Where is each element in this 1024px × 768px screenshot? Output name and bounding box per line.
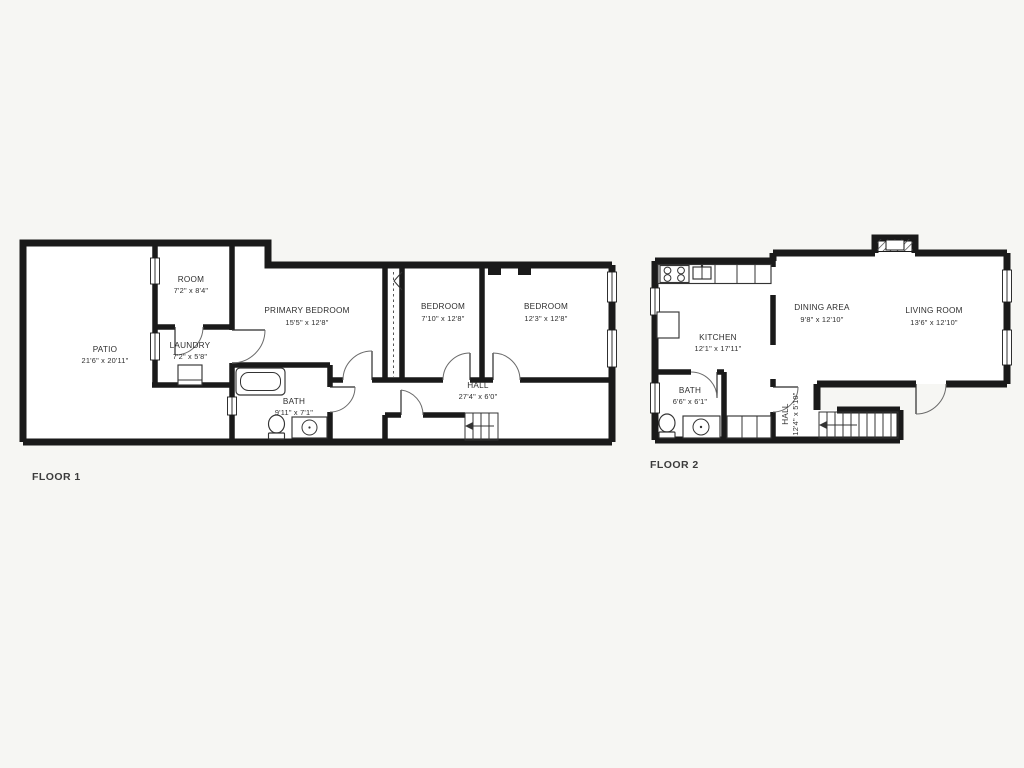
room-dims: 7'2" x 8'4" bbox=[174, 286, 209, 295]
bathtub-icon bbox=[236, 368, 285, 395]
chimney bbox=[877, 239, 914, 252]
room-dims: 27'4" x 6'0" bbox=[459, 392, 498, 401]
floor1-plan: PATIO 21'6" x 20'11" ROOM 7'2" x 8'4" LA… bbox=[18, 234, 622, 458]
toilet-icon bbox=[659, 414, 675, 438]
floor2-title: FLOOR 2 bbox=[650, 459, 699, 471]
room-dims: 7'2" x 5'8" bbox=[173, 352, 208, 361]
room-label: HALL bbox=[467, 381, 489, 390]
room-label: PRIMARY BEDROOM bbox=[264, 306, 349, 315]
room-label: KITCHEN bbox=[699, 333, 737, 342]
kitchen-sink-icon bbox=[693, 265, 711, 279]
room-dims: 7'10" x 12'8" bbox=[421, 314, 464, 323]
room-dims: 15'5" x 12'8" bbox=[285, 318, 328, 327]
room-label: LAUNDRY bbox=[170, 341, 211, 350]
floor1-title: FLOOR 1 bbox=[32, 471, 81, 483]
room-label: BEDROOM bbox=[524, 302, 568, 311]
room-dims: 12'4" x 5'10" bbox=[791, 392, 800, 435]
sink-icon bbox=[292, 417, 327, 438]
stove-icon bbox=[660, 266, 689, 283]
room-dims: 9'8" x 12'10" bbox=[800, 315, 843, 324]
washer-icon bbox=[178, 365, 202, 385]
room-label: BEDROOM bbox=[421, 302, 465, 311]
room-label: BATH bbox=[283, 397, 305, 406]
floor2-plan: KITCHEN 12'1" x 17'11" DINING AREA 9'8" … bbox=[645, 234, 1017, 456]
room-dims: 13'6" x 12'10" bbox=[910, 318, 958, 327]
room-label: ROOM bbox=[178, 275, 204, 284]
kitchen-counter-bottom bbox=[727, 416, 771, 438]
fridge-icon bbox=[657, 312, 679, 338]
room-dims: 9'11" x 7'1" bbox=[275, 408, 313, 417]
room-dims: 6'6" x 6'1" bbox=[673, 397, 708, 406]
room-label: HALL bbox=[781, 403, 790, 425]
toilet-icon bbox=[269, 415, 285, 439]
room-dims: 12'1" x 17'11" bbox=[695, 344, 742, 353]
room-dims: 21'6" x 20'11" bbox=[82, 356, 129, 365]
room-label: DINING AREA bbox=[794, 303, 850, 312]
floorplan-page: { "colors": { "background": "#f6f6f3", "… bbox=[0, 0, 1024, 768]
sink-icon bbox=[683, 416, 720, 438]
room-label: BATH bbox=[679, 386, 701, 395]
room-dims: 12'3" x 12'8" bbox=[524, 314, 567, 323]
room-label: LIVING ROOM bbox=[905, 306, 962, 315]
room-label: PATIO bbox=[93, 345, 118, 354]
